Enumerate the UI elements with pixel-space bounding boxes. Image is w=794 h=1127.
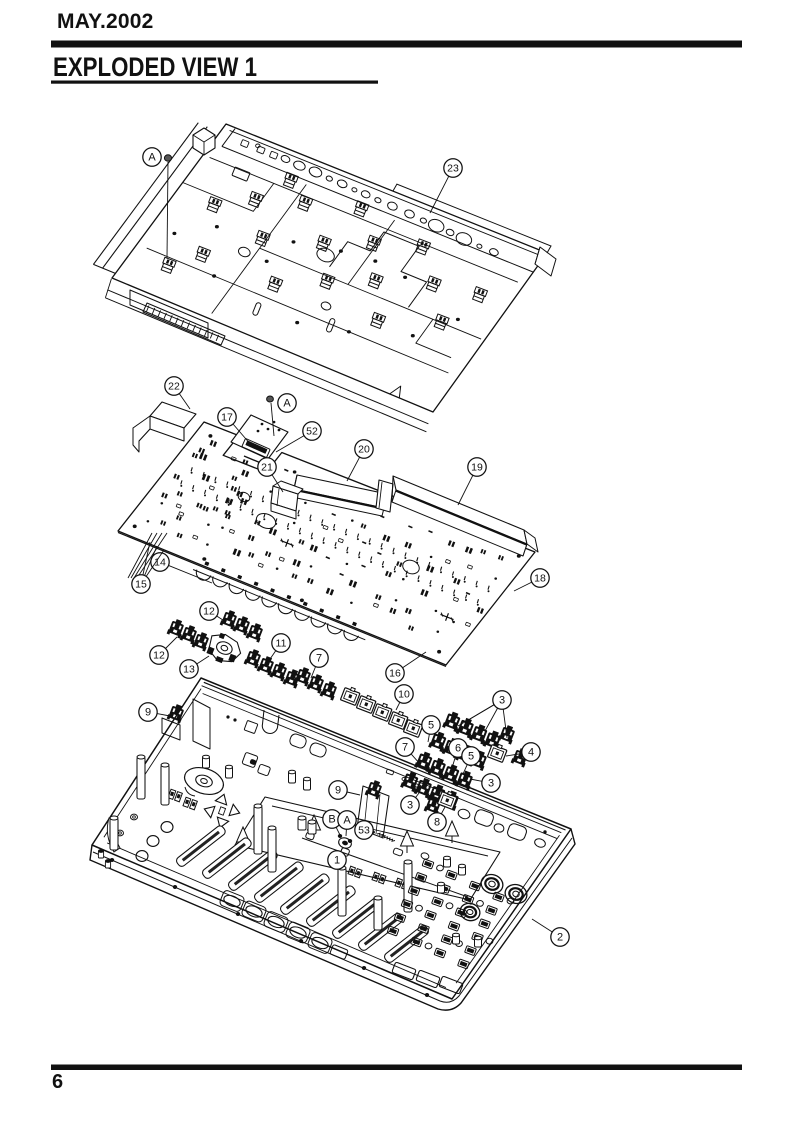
svg-text:13: 13 <box>183 664 195 676</box>
svg-text:15: 15 <box>135 579 147 591</box>
svg-text:7: 7 <box>316 653 322 665</box>
svg-text:8: 8 <box>434 817 440 829</box>
svg-text:53: 53 <box>358 825 370 837</box>
svg-text:16: 16 <box>389 668 401 680</box>
svg-text:A: A <box>283 398 291 410</box>
svg-text:5: 5 <box>428 720 434 732</box>
svg-text:3: 3 <box>407 800 413 812</box>
svg-text:4: 4 <box>528 747 534 759</box>
svg-text:3: 3 <box>499 695 505 707</box>
svg-text:MAY.2002: MAY.2002 <box>57 10 154 33</box>
svg-text:10: 10 <box>398 689 410 701</box>
svg-text:21: 21 <box>261 462 273 474</box>
svg-text:11: 11 <box>276 638 287 650</box>
svg-text:2: 2 <box>557 932 563 944</box>
svg-text:EXPLODED VIEW 1: EXPLODED VIEW 1 <box>53 52 257 82</box>
svg-text:7: 7 <box>402 742 408 754</box>
svg-text:12: 12 <box>153 650 165 662</box>
svg-text:18: 18 <box>534 573 546 585</box>
svg-text:17: 17 <box>221 412 233 424</box>
svg-text:A: A <box>343 815 351 827</box>
svg-text:9: 9 <box>335 785 341 797</box>
svg-text:1: 1 <box>334 855 340 867</box>
svg-text:6: 6 <box>52 1071 63 1093</box>
svg-text:B: B <box>328 814 335 826</box>
svg-text:6: 6 <box>455 743 461 755</box>
svg-text:A: A <box>148 152 156 164</box>
svg-text:19: 19 <box>471 462 483 474</box>
svg-text:22: 22 <box>168 381 180 393</box>
svg-text:5: 5 <box>468 751 474 763</box>
svg-text:20: 20 <box>358 444 370 456</box>
svg-text:52: 52 <box>306 426 318 438</box>
svg-text:12: 12 <box>203 606 215 618</box>
svg-text:9: 9 <box>145 707 151 719</box>
svg-text:23: 23 <box>447 163 459 175</box>
svg-text:3: 3 <box>488 778 494 790</box>
